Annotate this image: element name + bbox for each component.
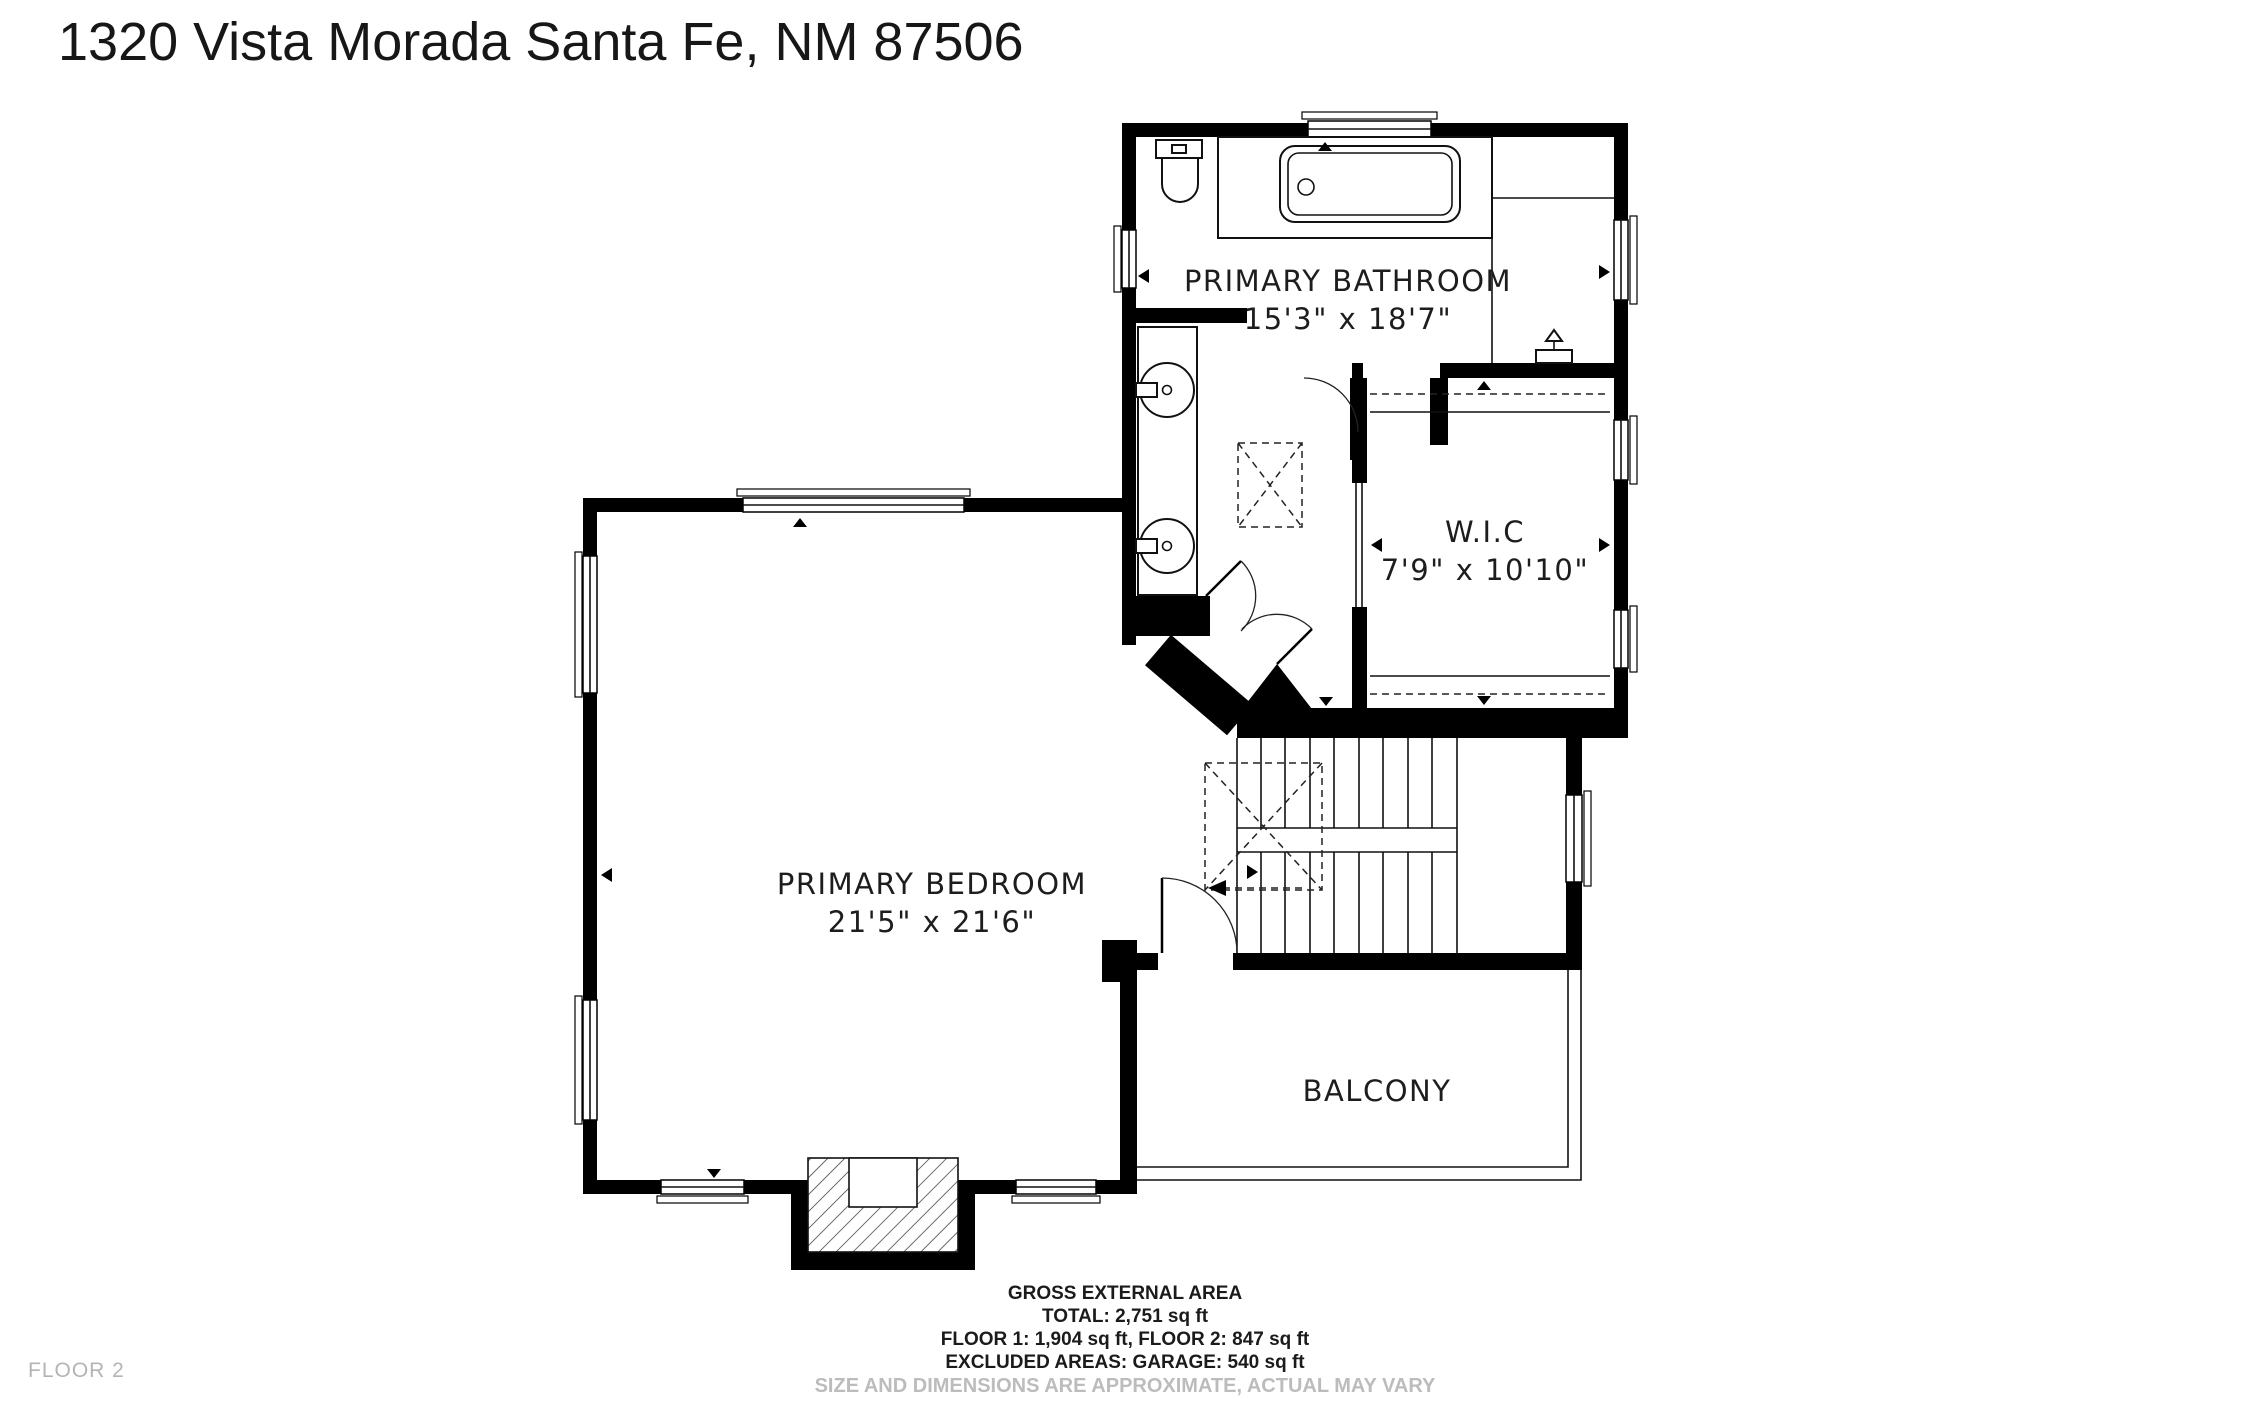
bedroom-bottom-window-1 [657, 1180, 748, 1203]
bedroom-top-window [737, 489, 970, 512]
floor-plan-canvas: 1320 Vista Morada Santa Fe, NM 87506 [0, 0, 2245, 1402]
label-primary-bedroom: PRIMARY BEDROOM [777, 867, 1087, 901]
area-summary-total: TOTAL: 2,751 sq ft [1042, 1306, 1209, 1327]
label-primary-bathroom: PRIMARY BATHROOM [1184, 264, 1512, 298]
label-primary-bedroom-dims: 21'5" x 21'6" [828, 905, 1036, 939]
page-title: 1320 Vista Morada Santa Fe, NM 87506 [58, 12, 1024, 72]
bedroom-bottom-window-2 [1012, 1180, 1100, 1203]
area-summary-heading: GROSS EXTERNAL AREA [1008, 1283, 1243, 1304]
label-wic-dims: 7'9" x 10'10" [1381, 553, 1589, 587]
wic-right-window-1 [1614, 416, 1637, 484]
bathroom-left-window [1114, 226, 1136, 292]
bedroom-left-window-1 [575, 552, 597, 697]
area-summary-excluded: EXCLUDED AREAS: GARAGE: 540 sq ft [945, 1352, 1305, 1373]
fireplace-icon [791, 1158, 975, 1270]
floor-plan-page: 1320 Vista Morada Santa Fe, NM 87506 [0, 0, 2245, 1402]
vanity-double-sink [1136, 327, 1197, 595]
floor-number-tag: FLOOR 2 [28, 1359, 125, 1382]
bathtub-icon [1218, 137, 1492, 238]
wic-right-window-2 [1614, 606, 1637, 672]
bedroom-left-window-2 [575, 996, 597, 1124]
area-summary-disclaimer: SIZE AND DIMENSIONS ARE APPROXIMATE, ACT… [815, 1375, 1436, 1397]
label-balcony: BALCONY [1303, 1074, 1452, 1108]
pocket-door [1352, 483, 1367, 607]
label-wic: W.I.C [1445, 515, 1525, 549]
bathroom-top-window [1302, 112, 1437, 137]
area-summary-floors: FLOOR 1: 1,904 sq ft, FLOOR 2: 847 sq ft [941, 1329, 1310, 1350]
label-primary-bathroom-dims: 15'3" x 18'7" [1244, 302, 1452, 336]
stair-hall-window [1566, 791, 1591, 886]
bathroom-right-window [1614, 216, 1637, 304]
